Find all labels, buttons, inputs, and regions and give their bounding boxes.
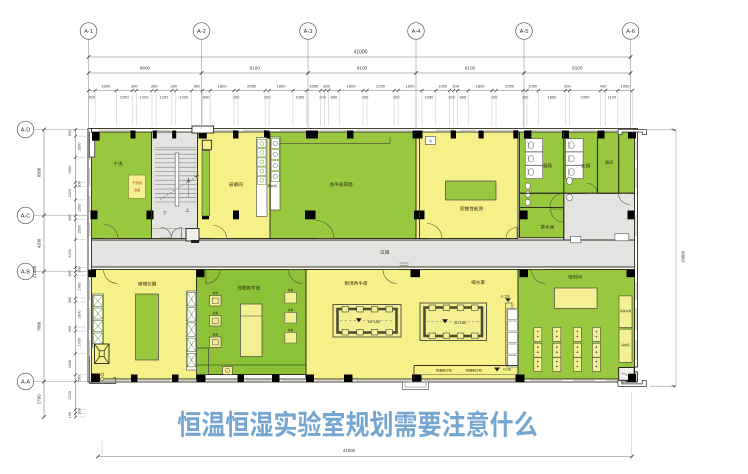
svg-text:A-4: A-4 bbox=[412, 29, 421, 35]
svg-text:1800: 1800 bbox=[218, 83, 228, 88]
svg-text:300: 300 bbox=[171, 83, 178, 88]
svg-text:800: 800 bbox=[460, 95, 467, 100]
svg-text:6500: 6500 bbox=[37, 167, 42, 177]
svg-text:2350: 2350 bbox=[580, 95, 590, 100]
svg-text:4200: 4200 bbox=[37, 238, 42, 248]
svg-text:41000: 41000 bbox=[343, 448, 356, 453]
svg-text:300: 300 bbox=[564, 83, 571, 88]
svg-text:300: 300 bbox=[264, 95, 271, 100]
svg-text:300: 300 bbox=[362, 95, 369, 100]
svg-text:100: 100 bbox=[68, 412, 72, 418]
svg-text:1500: 1500 bbox=[77, 225, 81, 233]
svg-text:1100: 1100 bbox=[607, 95, 616, 100]
svg-text:300: 300 bbox=[323, 83, 330, 88]
svg-text:8600: 8600 bbox=[140, 66, 151, 71]
svg-text:1020: 1020 bbox=[68, 189, 72, 197]
svg-text:7800: 7800 bbox=[37, 321, 42, 331]
svg-text:A-A: A-A bbox=[21, 380, 31, 386]
svg-text:2700: 2700 bbox=[37, 394, 42, 404]
svg-text:±0.150: ±0.150 bbox=[368, 319, 381, 324]
svg-text:300: 300 bbox=[68, 270, 72, 276]
svg-text:2050: 2050 bbox=[376, 83, 386, 88]
svg-text:400: 400 bbox=[600, 83, 607, 88]
svg-text:2100: 2100 bbox=[68, 391, 72, 399]
svg-text:1900: 1900 bbox=[77, 310, 81, 318]
svg-text:1800: 1800 bbox=[406, 83, 416, 88]
svg-text:1850: 1850 bbox=[547, 95, 557, 100]
svg-text:300: 300 bbox=[68, 297, 72, 303]
svg-text:1200: 1200 bbox=[159, 95, 169, 100]
svg-text:1050: 1050 bbox=[309, 83, 319, 88]
svg-text:1600: 1600 bbox=[77, 142, 81, 150]
svg-text:2100: 2100 bbox=[68, 249, 72, 257]
svg-text:300: 300 bbox=[522, 95, 529, 100]
svg-text:A-B: A-B bbox=[21, 270, 31, 276]
svg-text:1050: 1050 bbox=[438, 83, 448, 88]
svg-text:1200: 1200 bbox=[140, 95, 150, 100]
svg-text:1800: 1800 bbox=[347, 83, 357, 88]
svg-text:8100: 8100 bbox=[572, 66, 583, 71]
svg-text:1700: 1700 bbox=[77, 283, 81, 291]
svg-text:1050: 1050 bbox=[621, 83, 631, 88]
svg-text:A-5: A-5 bbox=[520, 29, 529, 35]
svg-text:500: 500 bbox=[88, 95, 95, 100]
svg-text:1200: 1200 bbox=[77, 204, 81, 212]
svg-text:1200: 1200 bbox=[120, 95, 130, 100]
svg-text:300: 300 bbox=[491, 95, 498, 100]
svg-text:2050: 2050 bbox=[505, 83, 515, 88]
svg-text:1600: 1600 bbox=[101, 83, 111, 88]
svg-text:41000: 41000 bbox=[354, 50, 368, 56]
svg-text:1900: 1900 bbox=[68, 166, 72, 174]
svg-text:A-1: A-1 bbox=[84, 29, 93, 35]
svg-text:+0.50: +0.50 bbox=[503, 368, 512, 372]
svg-text:300: 300 bbox=[233, 95, 240, 100]
svg-text:21200: 21200 bbox=[32, 265, 37, 278]
svg-text:8100: 8100 bbox=[465, 66, 476, 71]
svg-text:500: 500 bbox=[68, 130, 72, 136]
svg-text:A-D: A-D bbox=[21, 128, 31, 134]
svg-text:1800: 1800 bbox=[277, 83, 287, 88]
svg-text:1600: 1600 bbox=[68, 360, 72, 368]
svg-text:300: 300 bbox=[151, 83, 158, 88]
svg-text:A-2: A-2 bbox=[197, 29, 206, 35]
svg-text:300: 300 bbox=[448, 95, 455, 100]
svg-text:300: 300 bbox=[452, 83, 459, 88]
svg-text:500: 500 bbox=[77, 375, 81, 381]
svg-text:±0.150: ±0.150 bbox=[454, 320, 467, 325]
svg-text:800: 800 bbox=[194, 83, 201, 88]
svg-text:A-C: A-C bbox=[21, 214, 31, 220]
svg-text:A-3: A-3 bbox=[304, 29, 313, 35]
svg-text:A-6: A-6 bbox=[626, 29, 635, 35]
svg-text:1050: 1050 bbox=[295, 95, 305, 100]
svg-text:8100: 8100 bbox=[357, 66, 368, 71]
svg-text:1050: 1050 bbox=[424, 95, 434, 100]
svg-text:300: 300 bbox=[319, 95, 326, 100]
svg-text:1050: 1050 bbox=[528, 83, 538, 88]
svg-text:1800: 1800 bbox=[476, 83, 486, 88]
svg-text:800: 800 bbox=[331, 95, 338, 100]
svg-text:19000: 19000 bbox=[681, 250, 686, 263]
svg-text:1700: 1700 bbox=[77, 338, 81, 346]
svg-text:-0.150: -0.150 bbox=[500, 295, 510, 299]
svg-text:8100: 8100 bbox=[250, 66, 261, 71]
svg-text:2050: 2050 bbox=[247, 83, 257, 88]
svg-text:1200: 1200 bbox=[179, 95, 189, 100]
svg-text:300: 300 bbox=[68, 215, 72, 221]
svg-text:600: 600 bbox=[203, 95, 210, 100]
svg-text:300: 300 bbox=[393, 95, 400, 100]
svg-text:300: 300 bbox=[131, 83, 138, 88]
svg-text:300: 300 bbox=[68, 326, 72, 332]
